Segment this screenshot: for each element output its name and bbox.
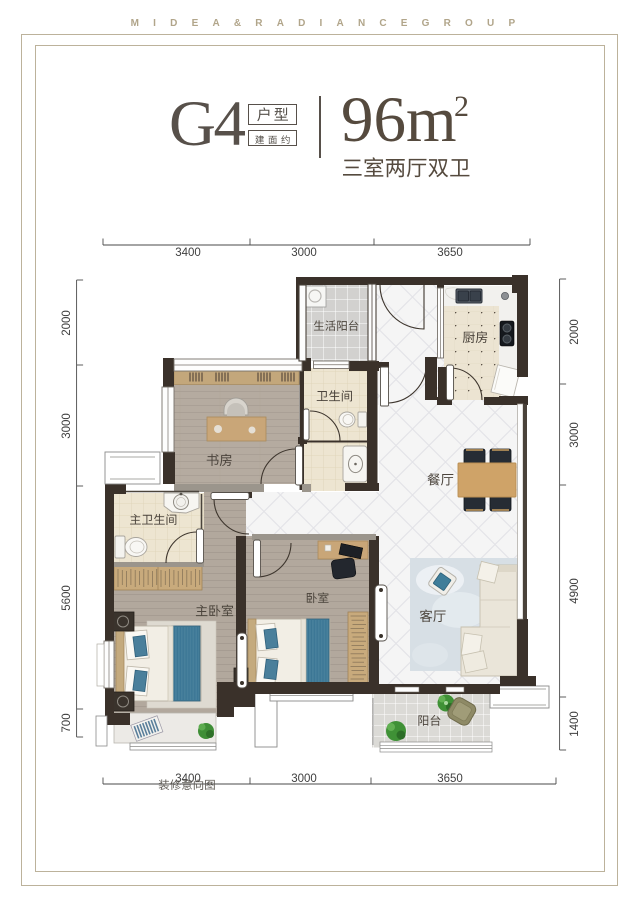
- svg-text:2000: 2000: [61, 310, 73, 336]
- svg-text:3400: 3400: [175, 773, 201, 785]
- svg-text:3000: 3000: [291, 773, 317, 785]
- svg-text:1400: 1400: [569, 711, 581, 737]
- svg-text:2000: 2000: [569, 319, 581, 345]
- svg-text:3000: 3000: [291, 247, 317, 259]
- svg-text:5600: 5600: [61, 585, 73, 611]
- svg-text:3650: 3650: [437, 247, 463, 259]
- svg-text:3650: 3650: [437, 773, 463, 785]
- svg-text:3400: 3400: [175, 247, 201, 259]
- svg-text:700: 700: [61, 713, 73, 732]
- svg-text:3000: 3000: [61, 413, 73, 439]
- svg-text:4900: 4900: [569, 578, 581, 604]
- svg-text:3000: 3000: [569, 422, 581, 448]
